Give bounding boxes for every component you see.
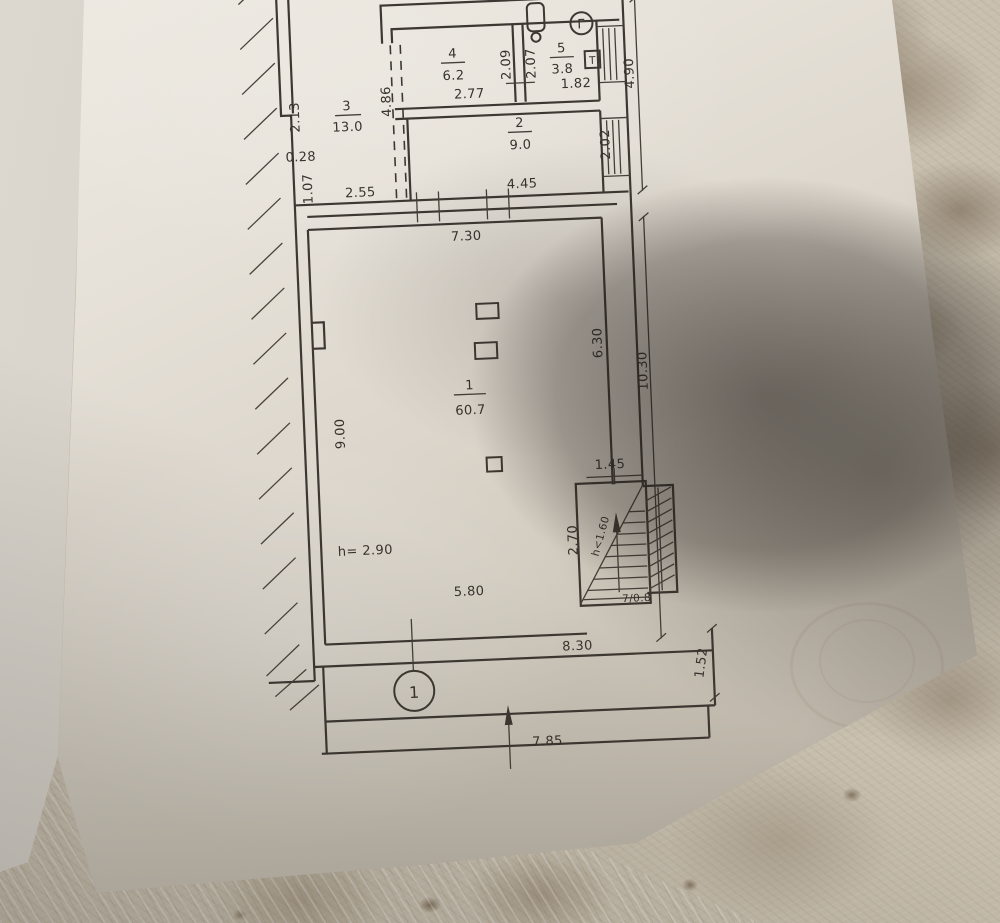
dim-1-82: 1.82 [560, 76, 591, 92]
dim-2-13: 2.13 [288, 102, 304, 133]
dim-7-85: 7.85 [532, 734, 563, 750]
dim-7-30: 7.30 [451, 229, 482, 245]
dim-2-77: 2.77 [454, 86, 485, 102]
dashed-opening [390, 45, 406, 199]
room-5-number: 5 [557, 41, 566, 56]
photo-of-floorplan: Т Г 1 3 13.0 2.13 [0, 0, 1000, 923]
room-3-number: 3 [342, 99, 351, 114]
room-4-area: 6.2 [442, 68, 464, 84]
dim-0-28: 0.28 [285, 150, 316, 166]
dim-10-30: 10.30 [635, 351, 652, 391]
room-1-area: 60.7 [455, 403, 486, 419]
columns [473, 303, 505, 472]
dim-1-07: 1.07 [301, 173, 317, 204]
room-1-number: 1 [465, 378, 474, 393]
dim-h-2-90: h= 2.90 [338, 543, 394, 560]
dim-1-45: 1.45 [594, 457, 625, 473]
room-5-area: 3.8 [551, 62, 573, 78]
dim-1-52: 1.52 [692, 647, 711, 679]
dim-9-00: 9.00 [333, 418, 349, 449]
axis-marker-number: 1 [409, 683, 420, 702]
dim-4-45: 4.45 [507, 176, 538, 192]
room-4-number: 4 [448, 47, 457, 62]
dim-6-30: 6.30 [590, 327, 606, 358]
dim-2-55: 2.55 [345, 185, 376, 201]
dim-2-09: 2.09 [498, 49, 514, 80]
room-2-area: 9.0 [509, 137, 531, 153]
dim-8-30: 8.30 [562, 638, 593, 654]
corner-letter-circle: Г [570, 12, 593, 35]
dim-stair-steps: 7/0.8 [622, 592, 651, 605]
dim-4-90: 4.90 [622, 58, 638, 89]
floorplan-drawing: Т Г 1 3 13.0 2.13 [229, 0, 723, 797]
stair-direction-arrow [612, 512, 621, 532]
labels: 3 13.0 2.13 0.28 1.07 2.55 4.86 4 6.2 2.… [281, 36, 715, 759]
boiler-label: Т [588, 55, 596, 67]
dim-2-02: 2.02 [598, 129, 614, 160]
dim-2-07: 2.07 [523, 48, 539, 79]
dim-4-86: 4.86 [379, 86, 395, 117]
stairs [576, 480, 676, 606]
dim-2-70: 2.70 [565, 524, 581, 555]
hatching-left-wall [237, 0, 320, 711]
corner-letter: Г [577, 17, 586, 32]
axis-marker-circle: 1 [393, 670, 435, 712]
dim-5-80: 5.80 [454, 584, 485, 600]
room-2-number: 2 [515, 116, 524, 131]
room-3-area: 13.0 [332, 120, 363, 136]
